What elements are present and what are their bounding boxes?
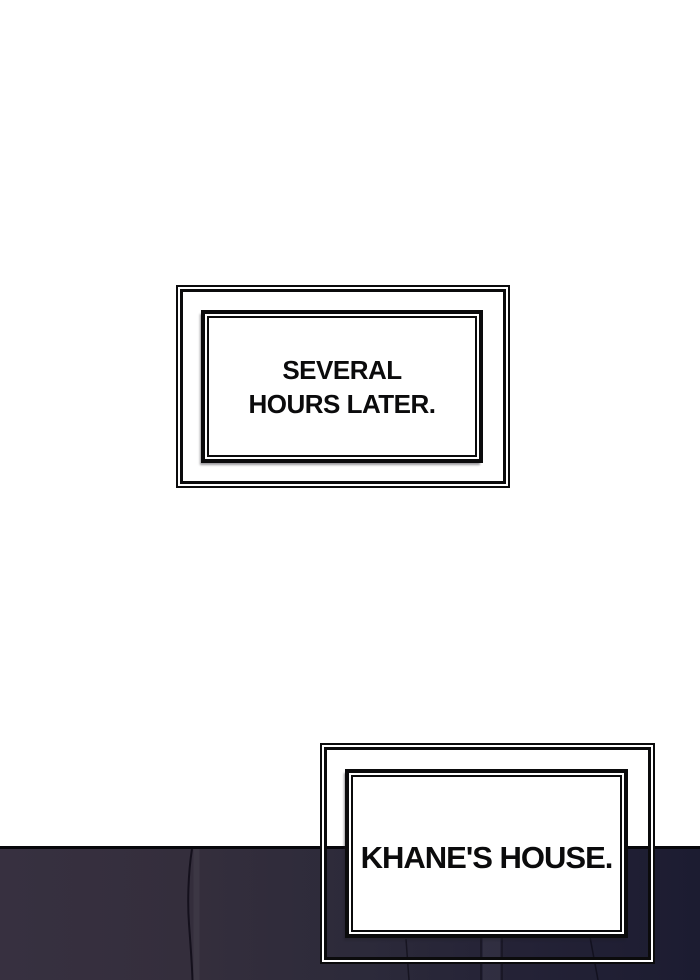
location-caption-panel: KHANE'S HOUSE. (345, 769, 628, 938)
caption-line: KHANE'S HOUSE. (361, 841, 613, 875)
caption-line: SEVERAL (248, 353, 435, 387)
timeskip-caption-text: SEVERAL HOURS LATER. (248, 353, 435, 421)
caption-line: HOURS LATER. (248, 387, 435, 421)
timeskip-caption-panel: SEVERAL HOURS LATER. (201, 310, 483, 463)
location-caption-text: KHANE'S HOUSE. (361, 841, 613, 875)
comic-page: SEVERAL HOURS LATER. KHANE'S HOUSE. (0, 0, 700, 980)
